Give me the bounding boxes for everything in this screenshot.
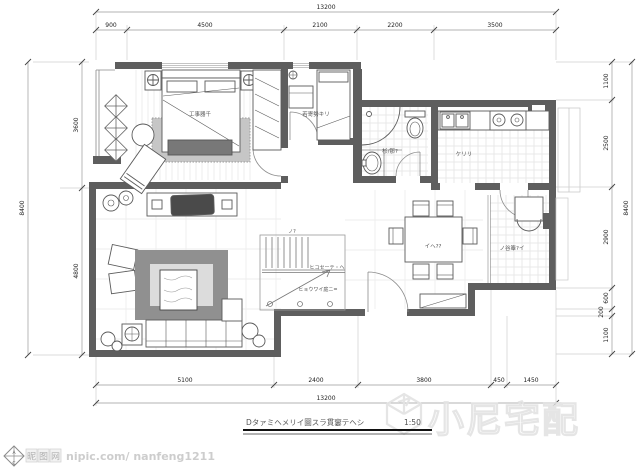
sofa-chaise	[222, 299, 242, 321]
watermark-nipic: A C 昵图网 nipic.com/ nanfeng1211	[4, 446, 215, 467]
armchair	[109, 270, 138, 293]
dim-top-seg: 2200	[387, 22, 402, 29]
sofa	[146, 320, 242, 347]
bed-headboard	[162, 70, 240, 78]
dim-right-seg: 600	[603, 292, 610, 304]
dining-chair	[389, 228, 403, 244]
toilet-tank	[405, 111, 425, 117]
dim-left-seg: 4800	[73, 263, 80, 278]
label-dining: イヘ??	[425, 244, 442, 250]
dim-bottom-seg: 3800	[416, 377, 431, 384]
dim-right-overall: 8400	[623, 200, 630, 215]
dining-chair	[437, 201, 453, 216]
dim-right-seg: 1100	[603, 327, 610, 342]
label-second-bedroom: 若寄勢キリ	[302, 110, 330, 118]
utility-room	[515, 197, 543, 231]
label-stairs-2: ヒョウワイ庭ニ=	[298, 286, 337, 293]
dim-right-seg: 2500	[603, 135, 610, 150]
armchair	[108, 245, 138, 270]
title-block: Dタァミヘメリイ圖スラ貫窶テヘシ 1:50	[243, 417, 432, 434]
drawing-scale: 1:50	[404, 418, 421, 427]
label-kitchen: ケリリ	[456, 151, 473, 158]
shower-head-icon	[367, 112, 372, 117]
brand-watermark-text: 小尼宅配	[428, 399, 580, 441]
dim-bottom-overall: 13200	[316, 395, 335, 402]
dim-top-overall: 13200	[316, 4, 335, 11]
nipic-account-text: nipic.com/ nanfeng1211	[66, 450, 215, 463]
label-utility: ノ谷簟?イ	[500, 244, 525, 252]
dining-furniture	[389, 201, 477, 308]
dim-top-seg: 3500	[487, 22, 502, 29]
round-table	[132, 124, 154, 146]
balcony-furniture	[105, 95, 128, 162]
doors	[253, 112, 528, 312]
toilet-bowl	[407, 118, 423, 138]
tv	[171, 194, 215, 215]
second-bedroom-furniture	[289, 70, 350, 140]
dim-left-seg: 3600	[73, 117, 80, 132]
bath-door	[396, 152, 420, 176]
nipic-site-name: 昵图网	[27, 452, 63, 463]
label-master-bedroom: 工事器千	[189, 110, 212, 118]
dim-right-seg: 2900	[603, 229, 610, 244]
plant-icon	[103, 195, 119, 211]
bathroom-fixtures	[362, 107, 425, 176]
dim-bottom-seg: 1450	[523, 377, 538, 384]
label-stairs-note: ノ?	[288, 229, 296, 235]
washing-machine	[515, 197, 543, 221]
nipic-logo-icon: A C	[4, 446, 24, 467]
kitchen-fixtures	[438, 111, 549, 130]
wardrobe	[253, 70, 281, 150]
dining-table	[405, 217, 462, 262]
dining-chair	[463, 228, 477, 244]
dim-right-seg: 1100	[603, 73, 610, 88]
utility-partition	[488, 195, 491, 283]
brand-cube-icon	[387, 394, 421, 434]
master-door	[253, 148, 281, 176]
burner-icon	[493, 114, 505, 126]
burner-icon	[511, 114, 523, 126]
dim-bottom-seg: 450	[493, 377, 505, 384]
bed-bench	[168, 140, 232, 155]
plant-icon	[119, 191, 133, 205]
label-bathroom: 杉/那?	[382, 147, 398, 155]
dim-top-seg: 2100	[312, 22, 327, 29]
label-stairs-1: ヒコセーテ・ヘ	[309, 265, 344, 271]
living-room-furniture	[101, 191, 265, 351]
dim-top-seg: 4500	[197, 22, 212, 29]
master-bedroom-furniture	[120, 70, 281, 194]
dim-right-seg: 200	[598, 306, 605, 318]
stairs	[260, 235, 345, 310]
dining-chair	[413, 201, 429, 216]
nipic-logo-c: C	[12, 461, 15, 467]
dim-left-overall: 8400	[19, 200, 26, 215]
floorplan-drawing: 13200 900 4500 2100 2200 3500 13200 5100…	[0, 0, 640, 474]
floorplan-screenshot: 13200 900 4500 2100 2200 3500 13200 5100…	[0, 0, 640, 474]
dim-bottom-seg: 5100	[177, 377, 192, 384]
drawing-title: Dタァミヘメリイ圖スラ貫窶テヘシ	[246, 417, 364, 427]
desk	[289, 86, 313, 108]
entry-door	[368, 272, 408, 312]
dining-chair	[413, 264, 429, 279]
dim-top-seg: 900	[105, 22, 117, 29]
dim-bottom-seg: 2400	[308, 377, 323, 384]
dining-chair	[437, 264, 453, 279]
